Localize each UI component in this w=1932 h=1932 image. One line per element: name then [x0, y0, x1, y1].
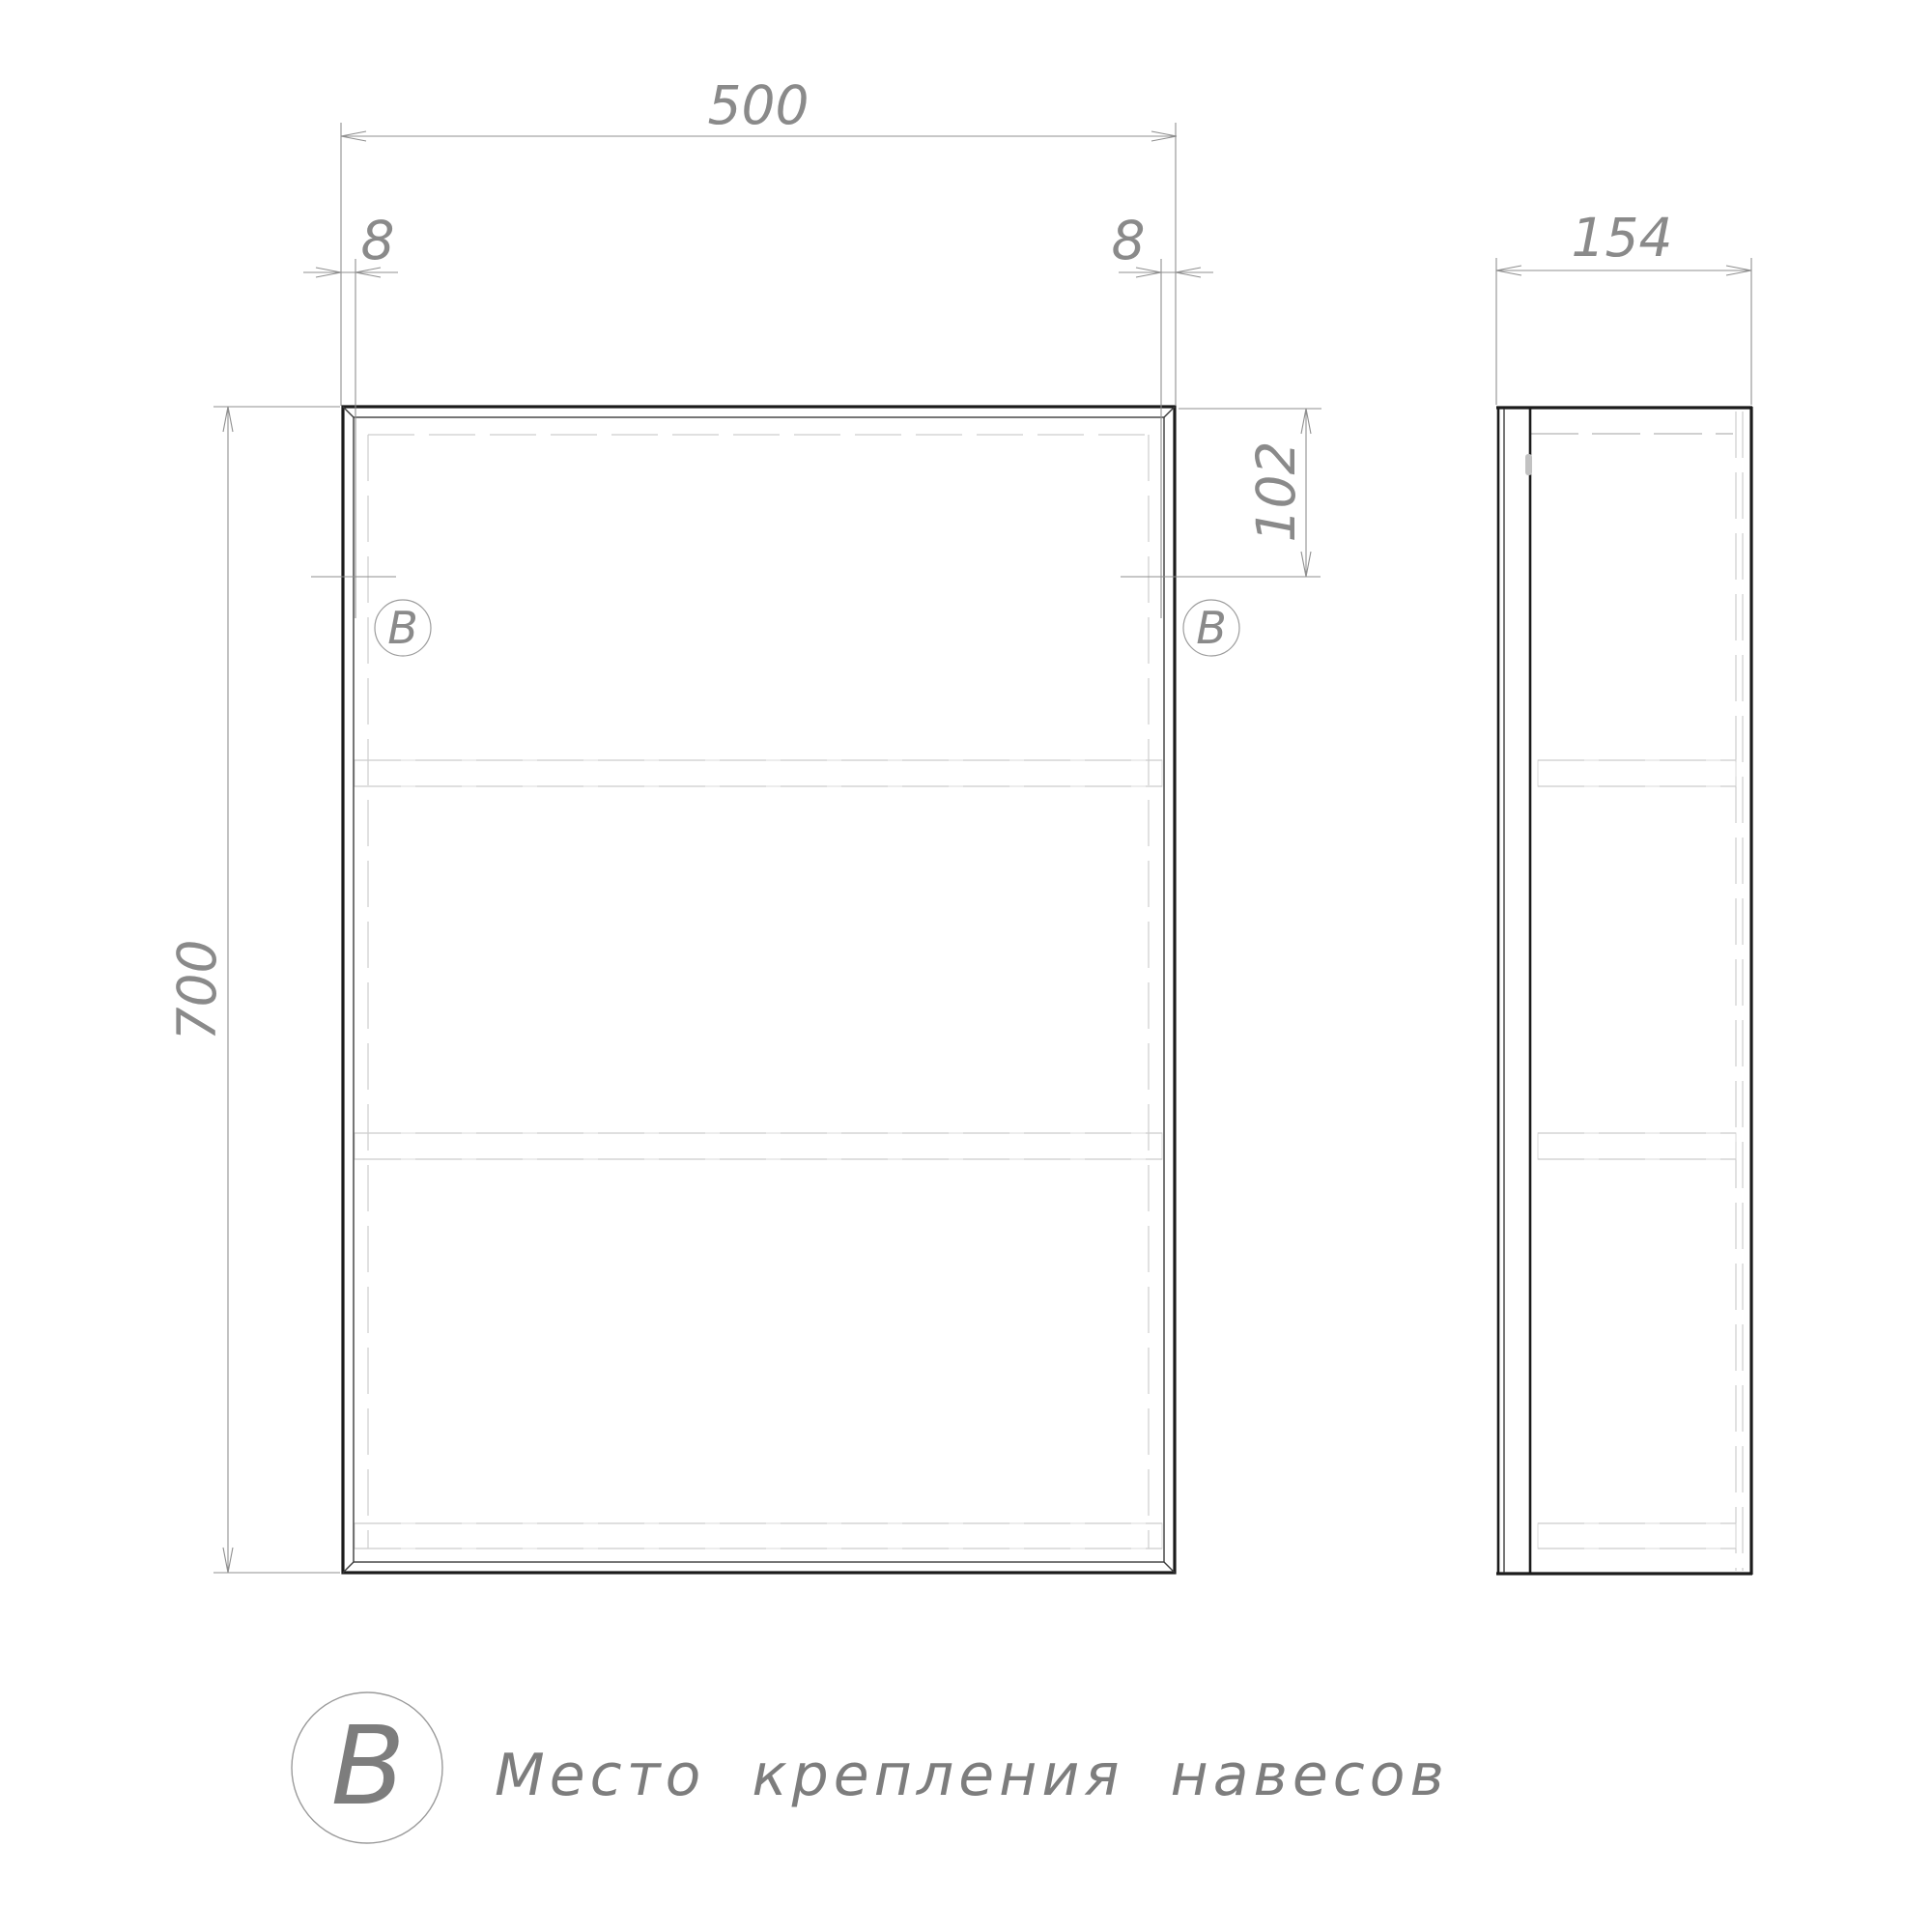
mount-marker-left: В [375, 600, 431, 656]
dim-side-depth: 154 [1496, 207, 1751, 405]
front-view: В В [311, 407, 1321, 1573]
dim-front-width-value: 500 [708, 74, 810, 136]
side-hinge-mark [1525, 454, 1532, 475]
side-bottom-panel [1538, 1523, 1736, 1548]
dimensions: 500 8 8 102 [166, 74, 1751, 1573]
front-door-outline [343, 407, 1175, 1573]
dim-front-height-value: 700 [166, 940, 228, 1041]
side-shelf-middle [1538, 1133, 1736, 1159]
front-shelf-middle [355, 1133, 1162, 1159]
dim-mount-offset-value: 102 [1245, 441, 1307, 543]
side-view [1496, 407, 1752, 1575]
dim-front-width: 500 [341, 74, 1177, 406]
mount-marker-right: В [1183, 600, 1239, 656]
front-bottom-panel [355, 1523, 1162, 1548]
dim-front-height: 700 [166, 407, 340, 1573]
dim-hinge-offset-right-value: 8 [1112, 210, 1146, 271]
legend: В Место крепления навесов [292, 1692, 1449, 1843]
side-outline [1496, 407, 1752, 1575]
dim-mount-offset: 102 [1179, 409, 1321, 577]
legend-description: Место крепления навесов [495, 1742, 1449, 1809]
cabinet-technical-drawing: В В [0, 0, 1932, 1932]
front-hidden-back-panel-lines [368, 435, 1149, 1548]
side-shelf-top [1538, 760, 1736, 786]
legend-marker-symbol: В [331, 1704, 406, 1830]
side-hidden-back-panel [1736, 412, 1743, 1571]
mount-marker-right-label: В [1196, 602, 1227, 654]
dim-side-depth-value: 154 [1572, 207, 1673, 269]
dim-hinge-offset-left-value: 8 [361, 210, 395, 271]
front-shelf-top [355, 760, 1162, 786]
mount-marker-left-label: В [387, 602, 418, 654]
dim-hinge-offset-right: 8 [1112, 210, 1214, 618]
